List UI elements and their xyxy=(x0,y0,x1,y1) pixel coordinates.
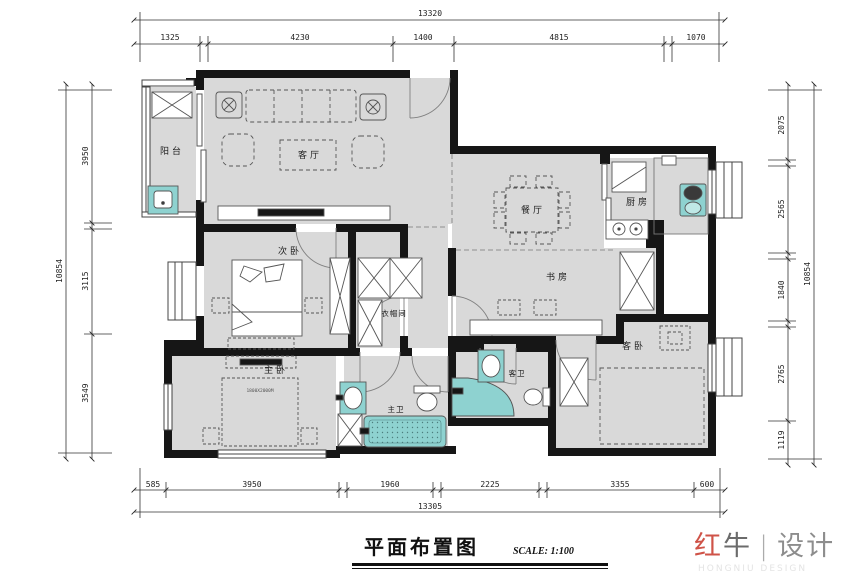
room-label-balcony: 阳台 xyxy=(160,145,184,157)
logo-divider: | xyxy=(759,531,770,562)
logo-subtitle: HONGNIU DESIGN xyxy=(698,564,835,574)
drawing-title: 平面布置图 xyxy=(364,531,479,560)
dim-top-5: 1070 xyxy=(686,33,705,42)
bed-size-annotation: 1800X2000M xyxy=(246,388,273,394)
dim-top-4: 4815 xyxy=(549,33,568,42)
room-label-bedroom2: 次卧 xyxy=(278,245,302,257)
dim-left-2: 3115 xyxy=(81,271,90,290)
dim-bot-1: 585 xyxy=(146,480,161,489)
room-label-kitchen: 厨房 xyxy=(626,196,650,208)
room-label-guest-bath: 客卫 xyxy=(509,368,526,378)
dim-top-total: 13320 xyxy=(418,9,442,18)
logo-char-red: 红 xyxy=(694,524,723,563)
dim-top-1: 1325 xyxy=(160,33,179,42)
room-label-cloakroom: 衣帽间 xyxy=(381,308,407,318)
dim-right-3: 1840 xyxy=(777,280,786,299)
room-label-dining: 餐厅 xyxy=(521,204,545,216)
fridge xyxy=(612,162,646,192)
dim-right-5: 1119 xyxy=(777,430,786,449)
gbath-toilet-tank xyxy=(543,388,550,406)
dim-top-3: 1400 xyxy=(413,33,432,42)
brand-logo: 红 牛 | 设计 HONGNIU DESIGN xyxy=(694,524,835,574)
title-rule-thick xyxy=(352,563,608,566)
room-label-study: 书房 xyxy=(546,271,570,283)
floor-plan-drawing: 阳台 客厅 餐厅 厨房 次卧 书房 衣帽间 主卧 主卫 客卫 客卧 1800X2… xyxy=(0,0,860,580)
scale-note: SCALE: 1:100 xyxy=(513,546,574,557)
room-label-master-bath: 主卫 xyxy=(388,404,405,414)
dim-right-4: 2765 xyxy=(777,364,786,383)
room-label-living: 客厅 xyxy=(298,149,322,161)
logo-char-dark: 牛 xyxy=(723,524,752,563)
dim-bot-6: 600 xyxy=(700,480,715,489)
dim-bot-5: 3355 xyxy=(610,480,629,489)
floor-plan-page: 阳台 客厅 餐厅 厨房 次卧 书房 衣帽间 主卧 主卫 客卫 客卧 1800X2… xyxy=(0,0,860,580)
tv xyxy=(258,209,324,216)
dim-right-1: 2075 xyxy=(777,115,786,134)
title-block: 平面布置图 SCALE: 1:100 xyxy=(352,531,608,569)
dim-left-total: 10854 xyxy=(55,259,64,283)
master-tv xyxy=(240,359,282,365)
dim-bottom-total: 13305 xyxy=(418,502,442,511)
dim-bot-3: 1960 xyxy=(380,480,399,489)
dim-right-2: 2565 xyxy=(777,199,786,218)
dim-bot-4: 2225 xyxy=(480,480,499,489)
room-label-guest-bedroom: 客卧 xyxy=(622,340,646,352)
dim-right-total: 10854 xyxy=(803,262,812,286)
dim-left-3: 3549 xyxy=(81,383,90,402)
mbath-toilet-tank xyxy=(414,386,440,393)
logo-name: 设计 xyxy=(777,524,835,563)
dim-bot-2: 3950 xyxy=(242,480,261,489)
dim-top-2: 4230 xyxy=(290,33,309,42)
room-label-master: 主卧 xyxy=(264,364,288,376)
title-rule-thin xyxy=(352,568,608,569)
dim-left-1: 3950 xyxy=(81,146,90,165)
